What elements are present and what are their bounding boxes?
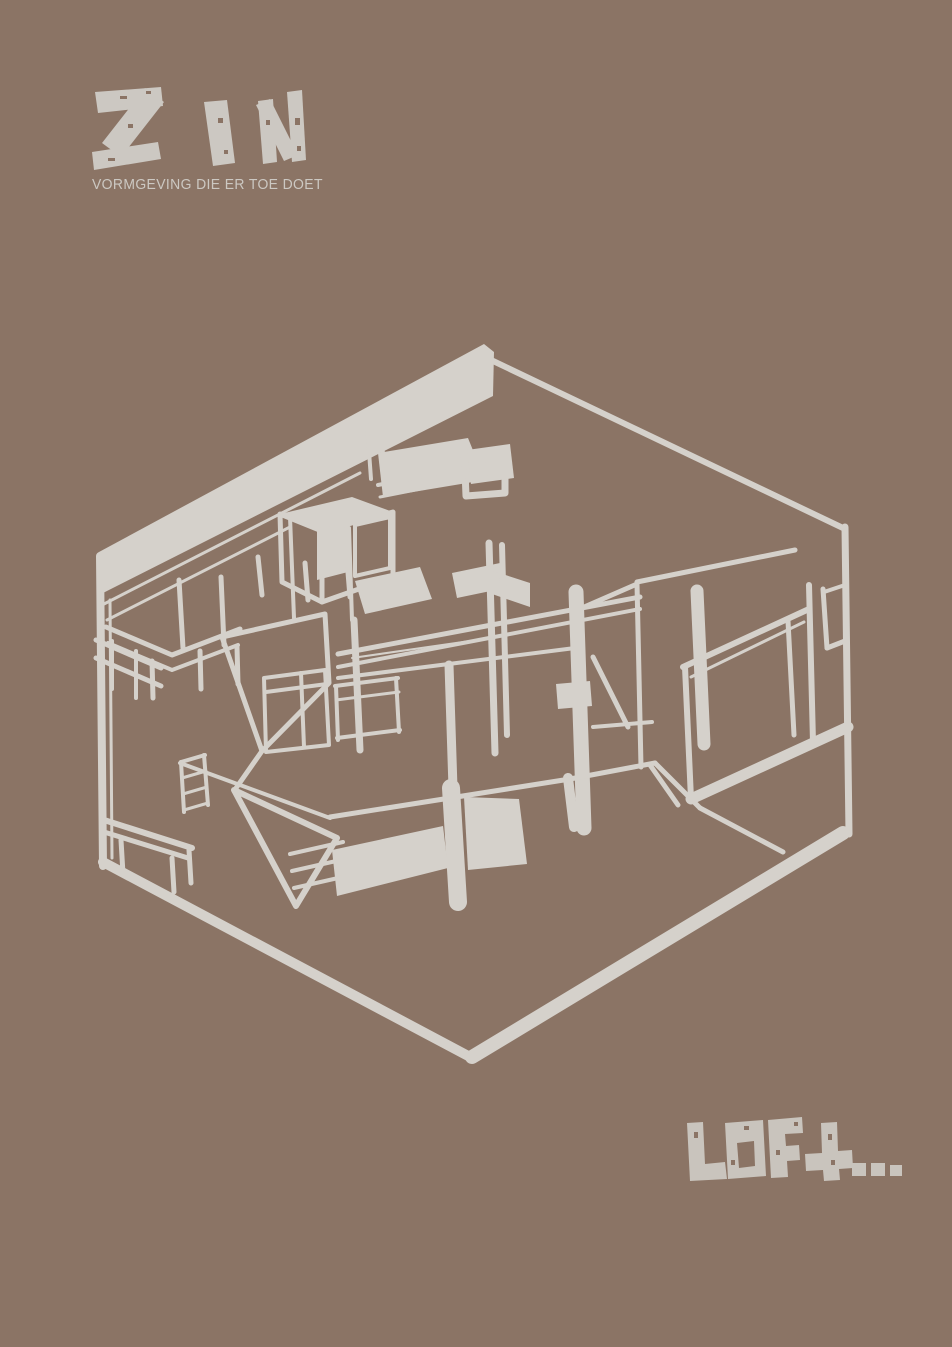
zin-logo-tagline: VORMGEVING DIE ER TOE DOET [92,176,334,193]
sketch-line-work [96,360,849,1058]
logo-block: VORMGEVING DIE ER TOE DOET [0,0,420,230]
zin-logo [85,80,325,180]
poster-background: VORMGEVING DIE ER TOE DOET [0,0,952,1347]
zin-letter-i [204,100,235,166]
